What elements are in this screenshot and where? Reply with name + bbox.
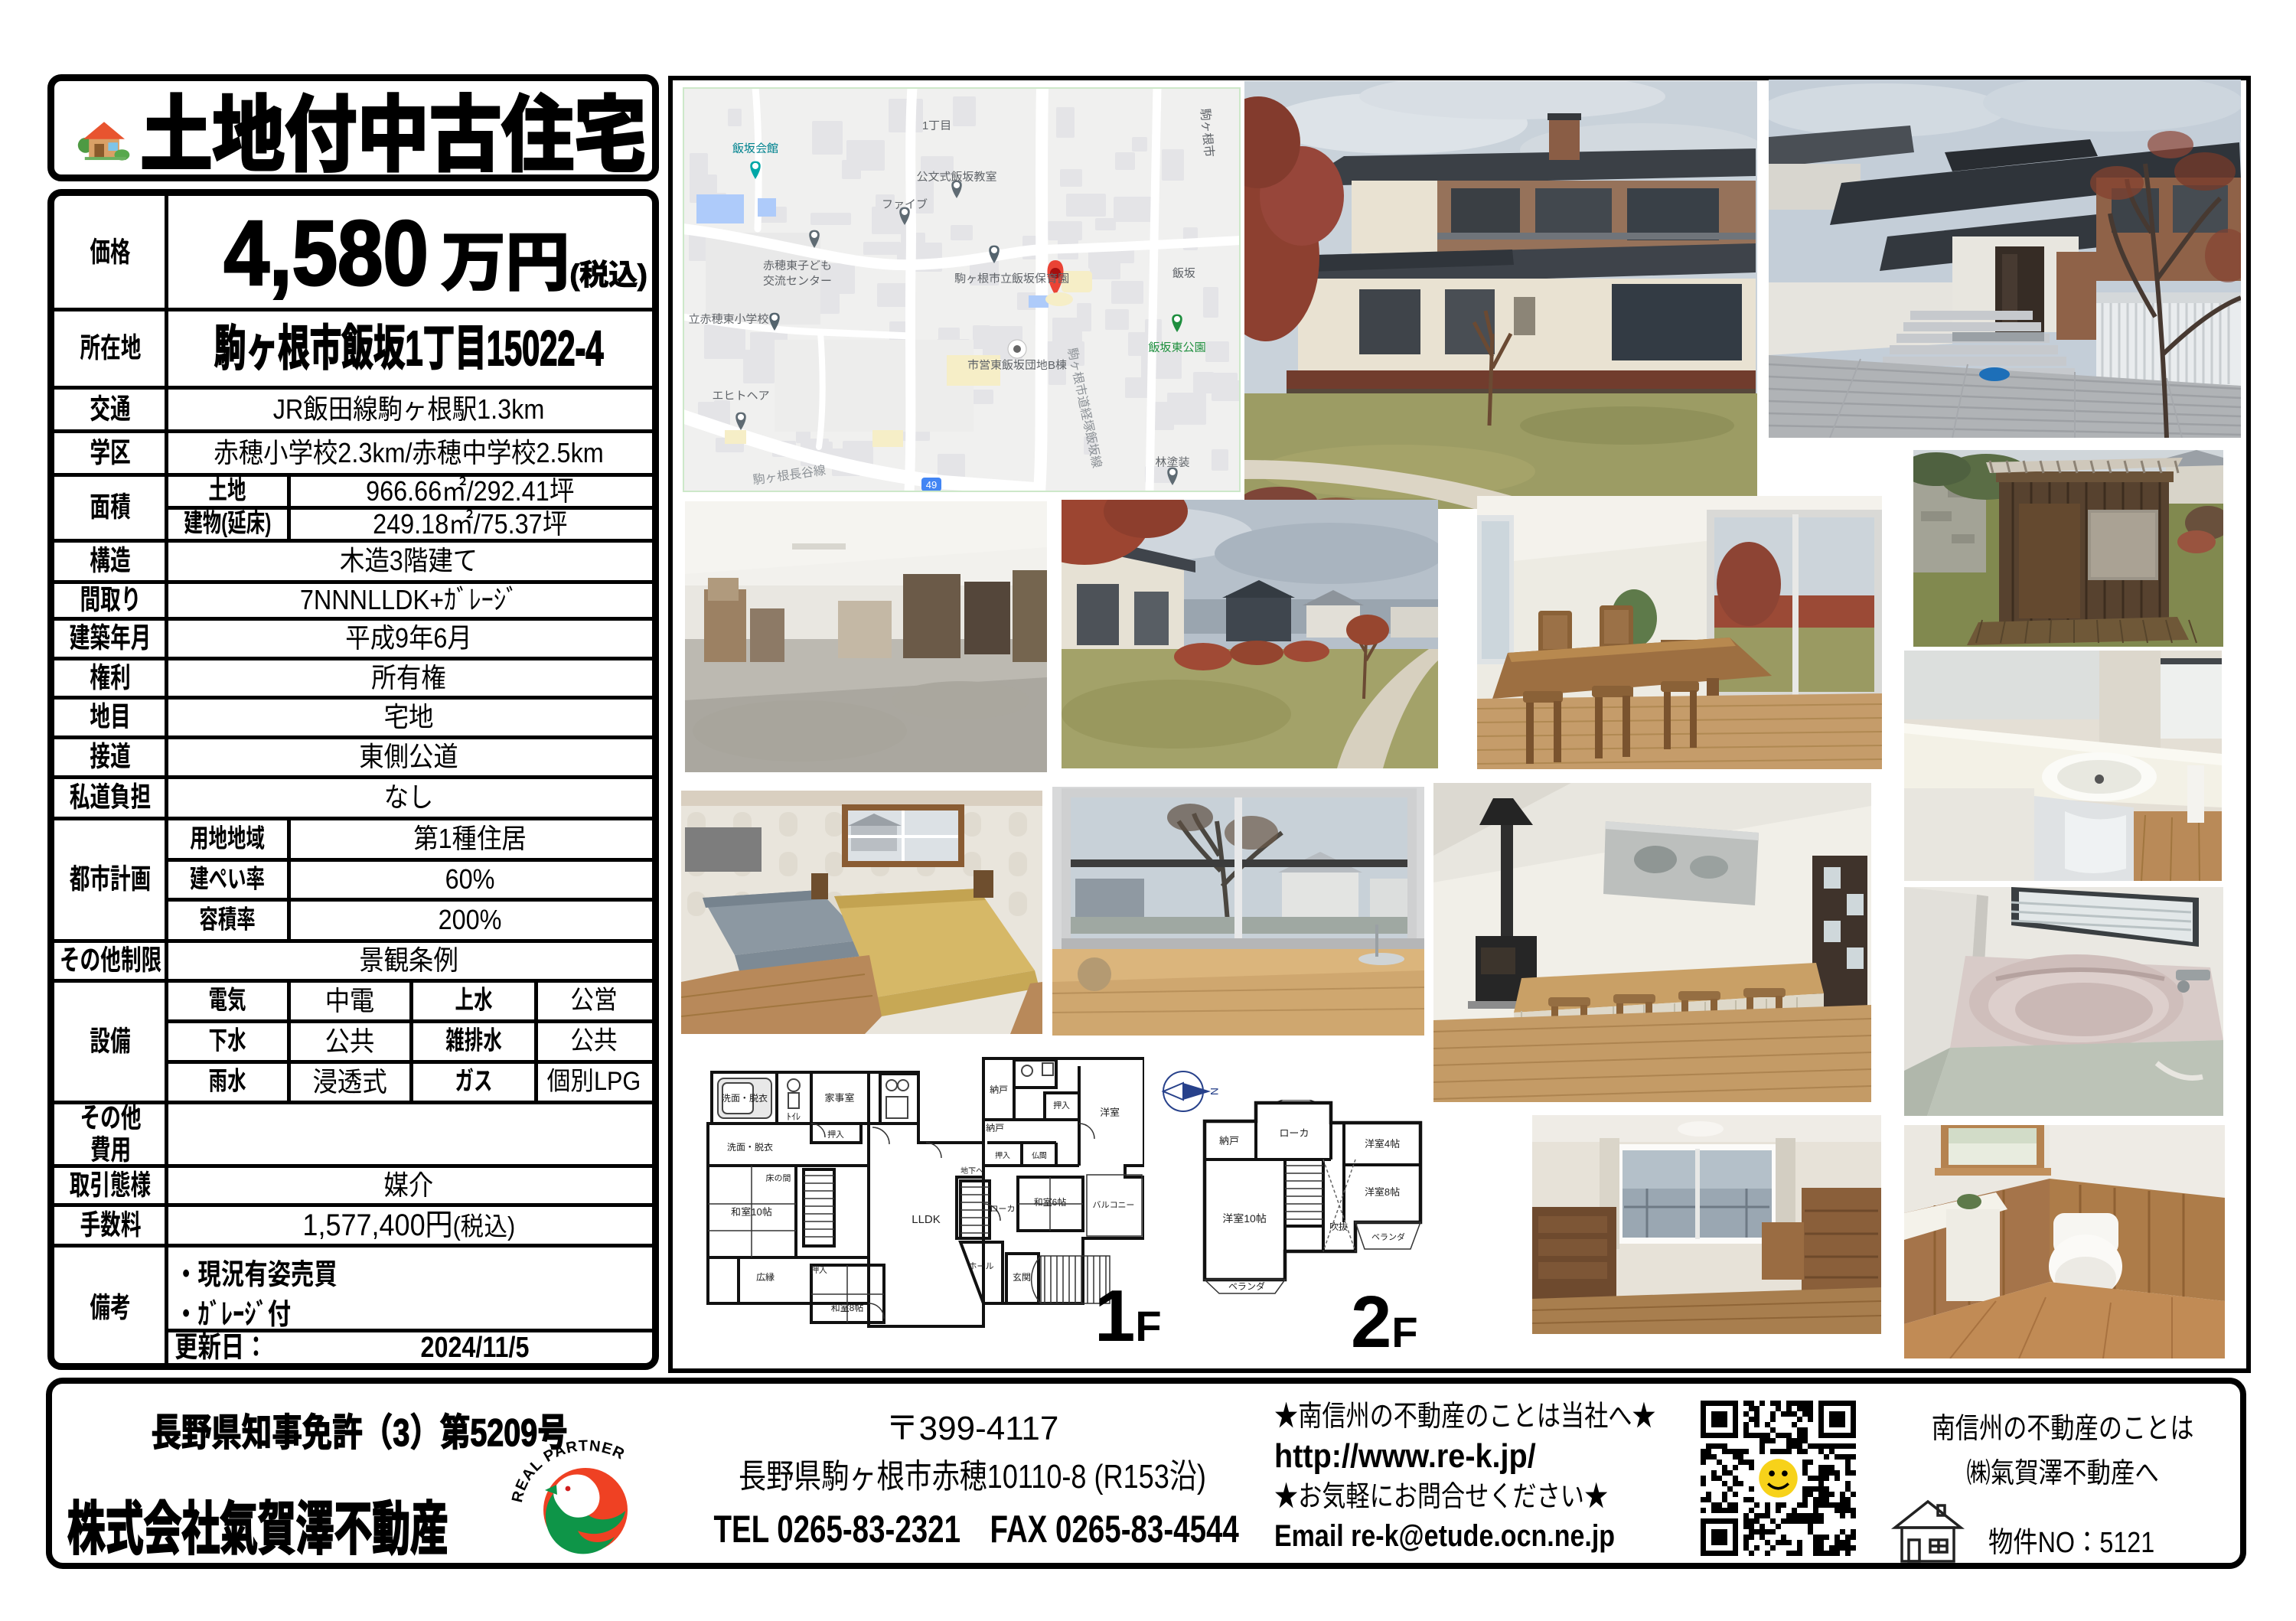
svg-text:ファイブ: ファイブ <box>882 198 928 211</box>
svg-text:ベランダ: ベランダ <box>1371 1232 1405 1242</box>
svg-text:和室8帖: 和室8帖 <box>831 1303 864 1313</box>
svg-text:公文式飯坂教室: 公文式飯坂教室 <box>916 171 996 184</box>
svg-text:洋室8帖: 洋室8帖 <box>1365 1186 1400 1198</box>
svg-text:床の間: 床の間 <box>765 1174 791 1183</box>
svg-text:ローカ: ローカ <box>1279 1127 1309 1139</box>
svg-text:N: N <box>1208 1088 1221 1095</box>
svg-text:地下へ: 地下へ <box>960 1167 983 1176</box>
svg-text:飯坂会館: 飯坂会館 <box>732 142 778 155</box>
svg-text:押入: 押入 <box>995 1152 1010 1160</box>
svg-text:納戸: 納戸 <box>986 1123 1004 1133</box>
svg-text:押入: 押入 <box>827 1130 844 1140</box>
svg-text:市営東飯坂団地B棟: 市営東飯坂団地B棟 <box>967 358 1068 372</box>
svg-text:和室6帖: 和室6帖 <box>1034 1197 1067 1208</box>
svg-text:ﾄｲﾚ: ﾄｲﾚ <box>787 1111 801 1122</box>
svg-text:飯坂: 飯坂 <box>1172 267 1196 280</box>
svg-text:洋室4帖: 洋室4帖 <box>1365 1138 1400 1150</box>
svg-text:洗面・脱衣: 洗面・脱衣 <box>727 1142 773 1153</box>
svg-text:和室10帖: 和室10帖 <box>731 1206 771 1218</box>
svg-text:納戸: 納戸 <box>990 1084 1008 1095</box>
svg-text:洋室: 洋室 <box>1100 1107 1120 1118</box>
svg-text:エヒトヘア: エヒトヘア <box>712 390 769 403</box>
svg-text:納戸: 納戸 <box>1219 1135 1239 1146</box>
svg-text:駒ヶ根市立飯坂保育園: 駒ヶ根市立飯坂保育園 <box>954 272 1069 285</box>
svg-text:交流センター: 交流センター <box>763 275 832 288</box>
svg-text:仏間: 仏間 <box>1032 1151 1047 1160</box>
svg-text:赤穂東子ども: 赤穂東子ども <box>763 259 832 272</box>
svg-text:広縁: 広縁 <box>756 1272 775 1283</box>
svg-text:ローカ: ローカ <box>990 1205 1016 1214</box>
svg-text:押入: 押入 <box>1053 1101 1070 1111</box>
svg-text:玄関: 玄関 <box>1013 1272 1031 1283</box>
svg-text:ホール: ホール <box>969 1262 994 1271</box>
svg-text:ベランダ: ベランダ <box>1228 1281 1265 1292</box>
svg-text:バルコニー: バルコニー <box>1093 1200 1135 1210</box>
svg-text:飯坂東公園: 飯坂東公園 <box>1148 341 1205 354</box>
svg-text:林塗装: 林塗装 <box>1155 456 1189 469</box>
svg-text:洗面・脱衣: 洗面・脱衣 <box>722 1093 768 1104</box>
svg-text:49: 49 <box>926 479 937 491</box>
svg-text:1丁目: 1丁目 <box>922 119 951 132</box>
svg-text:立赤穂東小学校: 立赤穂東小学校 <box>688 313 768 326</box>
svg-text:洋室10帖: 洋室10帖 <box>1222 1212 1267 1225</box>
svg-text:LLDK: LLDK <box>912 1213 941 1226</box>
svg-text:家事室: 家事室 <box>824 1092 854 1104</box>
svg-text:吹抜: 吹抜 <box>1329 1221 1348 1232</box>
svg-text:押入: 押入 <box>810 1266 827 1275</box>
